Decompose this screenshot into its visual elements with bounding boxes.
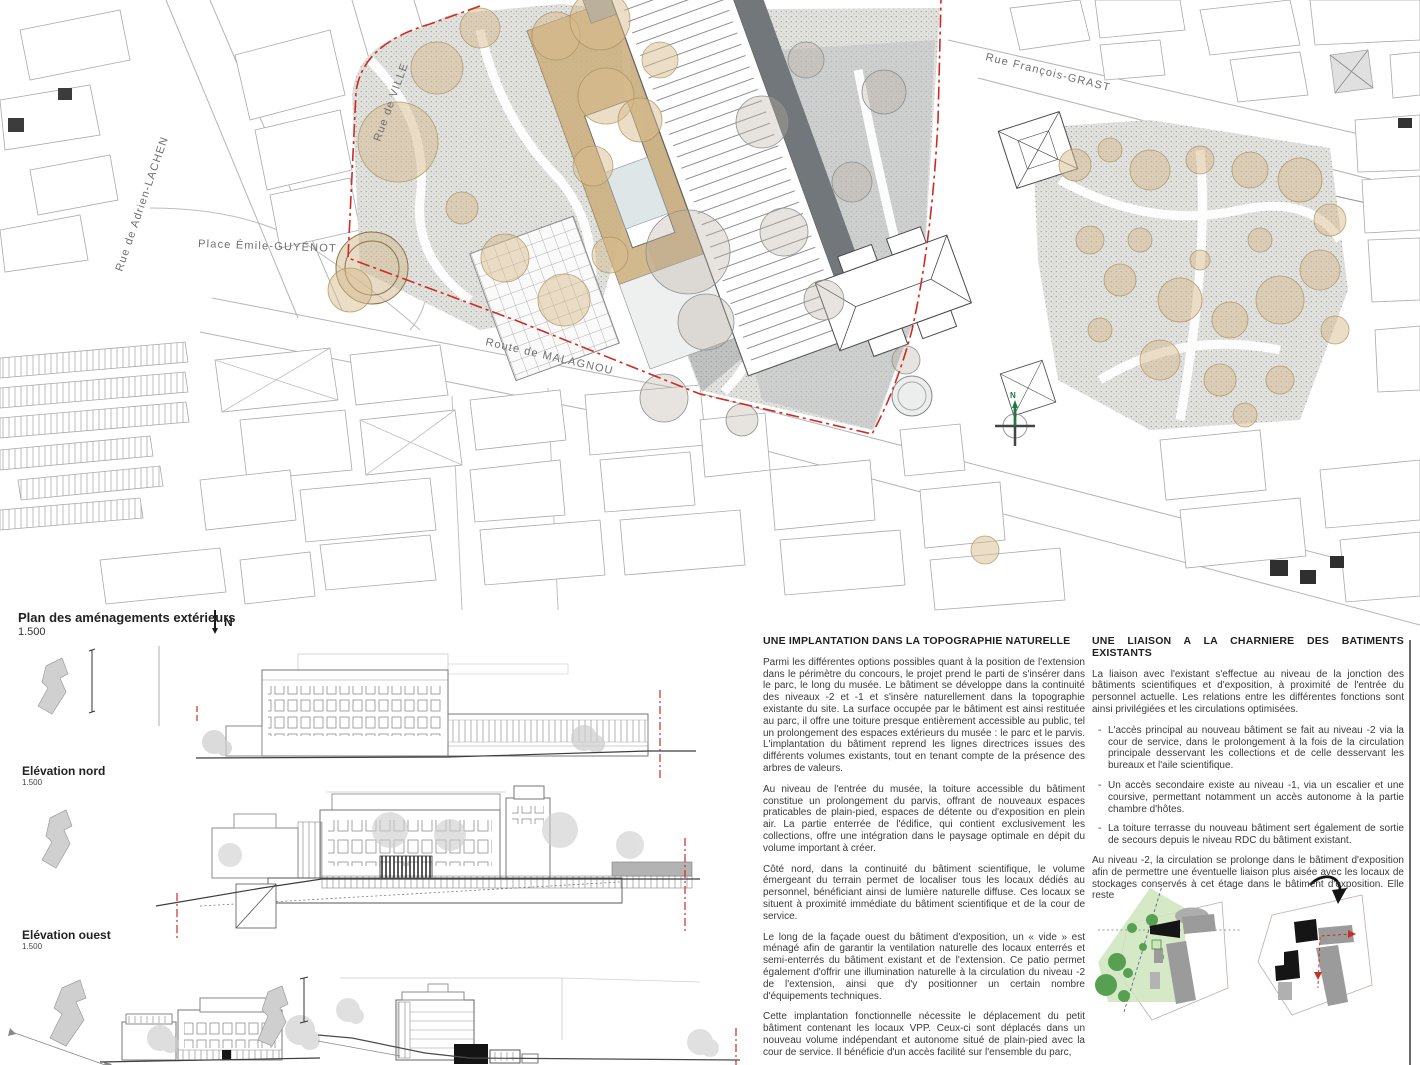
text-column-liaison: UNE LIAISON A LA CHARNIERE DES BATIMENTS… (1092, 636, 1404, 911)
bullet-text: La toiture terrasse du nouveau bâtiment … (1108, 823, 1404, 847)
elevation-ouest-label: Elévation ouest (22, 928, 111, 942)
elevation-nord-label: Elévation nord (22, 764, 105, 778)
paragraph: La liaison avec l'existant s'effectue au… (1092, 669, 1404, 716)
elevation-ouest-drawing (42, 786, 700, 940)
bullet-item: - L'accès principal au nouveau bâtiment … (1098, 725, 1404, 772)
compass-n-label: N (1010, 391, 1016, 400)
elevation-nord-label-block: Elévation nord 1.500 (22, 764, 105, 787)
elevation-ouest-scale: 1.500 (22, 942, 111, 951)
column-heading-liaison: UNE LIAISON A LA CHARNIERE DES BATIMENTS… (1092, 636, 1404, 660)
paragraph: Cette implantation fonctionnelle nécessi… (763, 1011, 1085, 1058)
paragraph: Côté nord, dans la continuité du bâtimen… (763, 864, 1085, 923)
paragraph: Parmi les différentes options possibles … (763, 657, 1085, 775)
bullet-text: Un accès secondaire existe au niveau -1,… (1108, 780, 1404, 815)
paragraph: Le long de la façade ouest du bâtiment d… (763, 932, 1085, 1003)
plan-scale: 1.500 (18, 626, 278, 638)
bullet-text: L'accès principal au nouveau bâtiment se… (1108, 725, 1404, 772)
bullet-item: - La toiture terrasse du nouveau bâtimen… (1098, 823, 1404, 847)
paragraph: Au niveau de l'entrée du musée, la toitu… (763, 784, 1085, 855)
street-label-adrien-lachenal: Rue de Adrien-LACHEN (113, 135, 171, 273)
plan-title: Plan des aménagements extérieurs (18, 610, 278, 625)
panel-edge-line (1409, 640, 1411, 1065)
column-heading-implantation: UNE IMPLANTATION DANS LA TOPOGRAPHIE NAT… (763, 636, 1085, 648)
text-column-implantation: UNE IMPLANTATION DANS LA TOPOGRAPHIE NAT… (763, 636, 1085, 1065)
elevation-nord-drawing (38, 646, 696, 780)
bottom-elevations (8, 977, 740, 1065)
garden-hut (1000, 360, 1055, 415)
competition-board: N Rue de Adrien-LACHEN Rue de VILLE Rue … (0, 0, 1420, 1065)
bullet-marker: - (1098, 780, 1108, 815)
bullet-marker: - (1098, 725, 1108, 772)
park-grounds (352, 4, 1348, 430)
elevation-nord-scale: 1.500 (22, 778, 105, 787)
paragraph: Au niveau -2, la circulation se prolonge… (1092, 855, 1404, 902)
elevation-ouest-label-block: Elévation ouest 1.500 (22, 928, 111, 951)
bullet-marker: - (1098, 823, 1108, 847)
bullet-item: - Un accès secondaire existe au niveau -… (1098, 780, 1404, 815)
plan-title-block: Plan des aménagements extérieurs 1.500 (18, 610, 278, 638)
